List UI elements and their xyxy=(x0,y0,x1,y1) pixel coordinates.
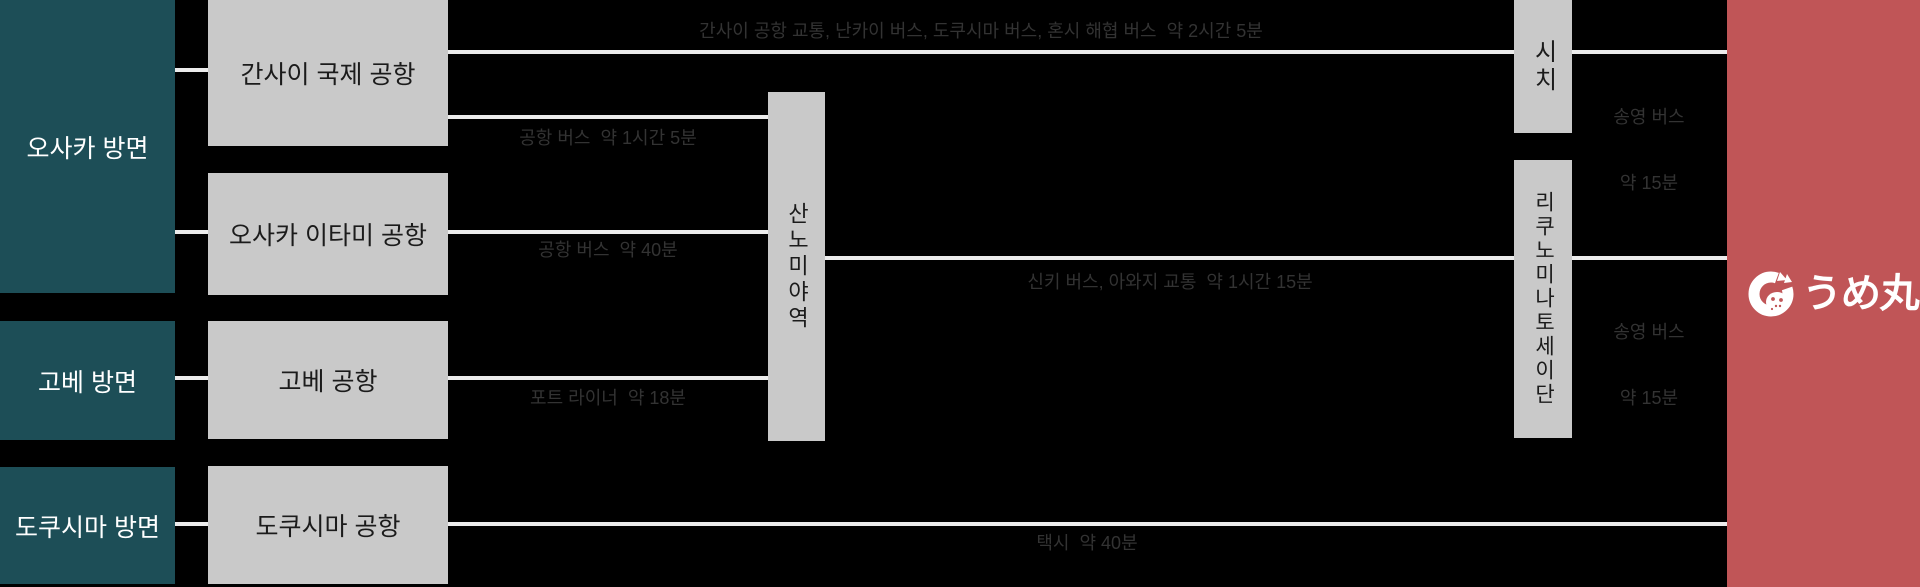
airport-label-itami: 오사카 이타미 공항 xyxy=(229,216,427,252)
route-label-shuttle-mid-line1: 송영 버스 xyxy=(1613,321,1684,343)
route-line-kansai-airport-bus xyxy=(448,115,768,119)
route-label-shuttle-top: 송영 버스 약 15분 xyxy=(1613,62,1684,238)
airport-box-kobe: 고베 공항 xyxy=(208,321,448,439)
origin-label-kobe: 고베 방면 xyxy=(38,363,137,399)
airport-label-kobe: 고베 공항 xyxy=(279,362,378,398)
stop-label-shichi: 시치 xyxy=(1526,39,1561,95)
route-label-kansai-airport-bus: 공항 버스 약 1시간 5분 xyxy=(519,127,697,149)
airport-box-itami: 오사카 이타미 공항 xyxy=(208,173,448,295)
origin-box-kobe: 고베 방면 xyxy=(0,321,175,440)
route-label-shuttle-mid-line2: 약 15분 xyxy=(1613,387,1684,409)
route-label-port-liner: 포트 라이너 약 18분 xyxy=(530,387,686,409)
origin-label-osaka: 오사카 방면 xyxy=(27,129,149,165)
station-label-sannomiya: 산노미야역 xyxy=(781,202,813,332)
connector-line-osaka-kansai xyxy=(175,68,208,72)
route-line-taxi xyxy=(448,522,1727,526)
connector-line-osaka-itami xyxy=(175,230,208,234)
route-label-shuttle-top-line1: 송영 버스 xyxy=(1613,106,1684,128)
route-label-shuttle-top-line2: 약 15분 xyxy=(1613,172,1684,194)
connector-line-kobe xyxy=(175,376,208,380)
hotel-logo-text: うめ丸 xyxy=(1801,274,1920,314)
route-line-kansai-highway-bus xyxy=(448,50,1514,54)
route-label-taxi: 택시 약 40분 xyxy=(1036,532,1137,554)
route-label-itami-airport-bus: 공항 버스 약 40분 xyxy=(538,239,677,261)
route-label-shinki-bus: 신키 버스, 아와지 교통 약 1시간 15분 xyxy=(1027,271,1312,293)
origin-box-tokushima: 도쿠시마 방면 xyxy=(0,467,175,584)
station-box-sannomiya: 산노미야역 xyxy=(768,92,825,441)
origin-box-osaka: 오사카 방면 xyxy=(0,0,175,293)
route-line-shuttle-top xyxy=(1572,50,1727,54)
airport-box-kansai: 간사이 국제 공항 xyxy=(208,0,448,146)
airport-label-kansai: 간사이 국제 공항 xyxy=(241,55,416,91)
route-line-shuttle-mid xyxy=(1572,256,1727,260)
route-label-kansai-highway-bus: 간사이 공항 교통, 난카이 버스, 도쿠시마 버스, 혼시 해협 버스 약 2… xyxy=(699,20,1263,42)
destination-box: うめ丸 xyxy=(1727,0,1920,587)
stop-label-rikunominatoseidan: 리쿠노미나토세이단 xyxy=(1528,191,1558,407)
route-line-itami-airport-bus xyxy=(448,230,768,234)
hotel-logo: うめ丸 xyxy=(1747,268,1919,320)
transit-access-diagram: 오사카 방면 고베 방면 도쿠시마 방면 간사이 국제 공항 오사카 이타미 공… xyxy=(0,0,1920,587)
stop-box-rikunominatoseidan: 리쿠노미나토세이단 xyxy=(1514,160,1572,438)
route-label-shuttle-mid: 송영 버스 약 15분 xyxy=(1613,277,1684,453)
airport-label-tokushima: 도쿠시마 공항 xyxy=(256,507,401,543)
pufferfish-circle-icon xyxy=(1747,268,1797,320)
route-line-port-liner xyxy=(448,376,768,380)
airport-box-tokushima: 도쿠시마 공항 xyxy=(208,466,448,584)
stop-box-shichi: 시치 xyxy=(1514,0,1572,133)
connector-line-tokushima xyxy=(175,522,208,526)
origin-label-tokushima: 도쿠시마 방면 xyxy=(15,508,160,544)
route-line-shinki-bus xyxy=(825,256,1514,260)
